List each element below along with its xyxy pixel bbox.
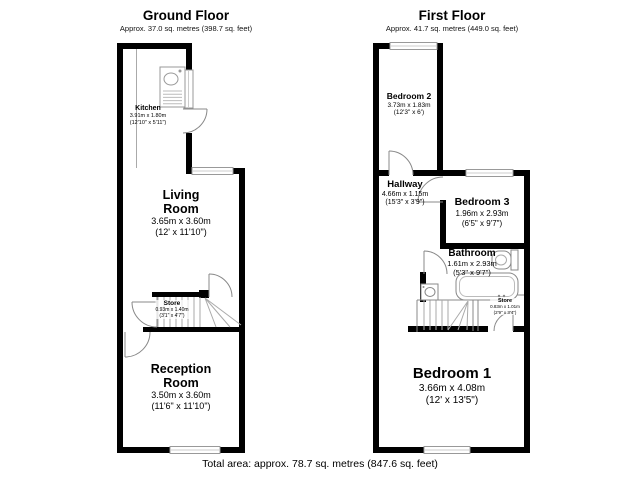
first-floor-header: First Floor Approx. 41.7 sq. metres (449… (386, 8, 518, 33)
store-ground-imperial: (3'1" x 4'7") (155, 313, 188, 319)
bedroom-1-imperial: (12' x 13'5") (413, 395, 491, 407)
bathroom-door-arc (424, 251, 447, 274)
hallway-metric: 4.66m x 1.15m (382, 191, 428, 200)
bedroom-3-imperial: (6'5" x 9'7") (455, 219, 510, 229)
store-first-imperial: (2'9" x 3'4") (490, 310, 520, 315)
kitchen-sink-icon (160, 67, 185, 107)
bedroom-2-name: Bedroom 2 (387, 92, 431, 102)
bathroom-name: Bathroom (447, 248, 497, 259)
room-label-bedroom-1: Bedroom 1 3.66m x 4.08m (12' x 13'5") (413, 366, 491, 407)
living-room-metric: 3.65m x 3.60m (146, 216, 216, 227)
living-room-imperial: (12' x 11'10") (146, 227, 216, 238)
stairs-door-arc (209, 274, 232, 297)
living-room-name: Living Room (146, 188, 216, 216)
kitchen-name: Kitchen (130, 105, 166, 113)
bedroom-3-name: Bedroom 3 (455, 197, 510, 209)
bedroom-1-metric: 3.66m x 4.08m (413, 383, 491, 395)
bedroom-2-imperial: (12'3" x 6') (387, 109, 431, 117)
bathroom-metric: 1.61m x 2.93m (447, 259, 497, 268)
ground-floor-subtitle: Approx. 37.0 sq. metres (398.7 sq. feet) (120, 24, 252, 34)
kitchen-metric: 3.91m x 1.80m (130, 113, 166, 120)
bathroom-imperial: (5'3" x 9'7") (447, 268, 497, 277)
room-label-store-ground: Store 0.93m x 1.40m (3'1" x 4'7") (155, 300, 188, 319)
room-label-store-first: Store 0.83m x 1.01m (2'9" x 3'4") (490, 298, 520, 315)
store-first-metric: 0.83m x 1.01m (490, 304, 520, 309)
total-area-text: Total area: approx. 78.7 sq. metres (847… (0, 458, 640, 470)
bedroom2-door-arc (389, 151, 413, 175)
room-label-bedroom-3: Bedroom 3 1.96m x 2.93m (6'5" x 9'7") (455, 197, 510, 228)
floor-plan-page: Ground Floor Approx. 37.0 sq. metres (39… (0, 0, 640, 480)
first-floor-subtitle: Approx. 41.7 sq. metres (449.0 sq. feet) (386, 24, 518, 34)
bedroom-2-metric: 3.73m x 1.83m (387, 102, 431, 110)
bedroom-1-name: Bedroom 1 (413, 366, 491, 383)
reception-room-imperial: (11'6" x 11'10") (145, 401, 217, 412)
kitchen-imperial: (12'10" x 5'11") (130, 120, 166, 127)
store-ground-name: Store (155, 300, 188, 307)
room-label-bathroom: Bathroom 1.61m x 2.93m (5'3" x 9'7") (447, 248, 497, 277)
store-door-arc (132, 302, 157, 327)
ground-floor-header: Ground Floor Approx. 37.0 sq. metres (39… (120, 8, 252, 33)
room-label-living-room: Living Room 3.65m x 3.60m (12' x 11'10") (146, 188, 216, 238)
first-floor-title: First Floor (386, 8, 518, 24)
basin-icon (421, 284, 438, 300)
room-label-hallway: Hallway 4.66m x 1.15m (15'3" x 3'9") (382, 180, 428, 208)
room-label-kitchen: Kitchen 3.91m x 1.80m (12'10" x 5'11") (130, 105, 166, 126)
reception-door-arc (125, 332, 150, 357)
hallway-name: Hallway (382, 180, 428, 191)
room-label-bedroom-2: Bedroom 2 3.73m x 1.83m (12'3" x 6') (387, 92, 431, 117)
kitchen-door-arc (183, 109, 207, 133)
room-label-reception-room: Reception Room 3.50m x 3.60m (11'6" x 11… (145, 362, 217, 412)
reception-room-metric: 3.50m x 3.60m (145, 390, 217, 401)
bedroom-3-metric: 1.96m x 2.93m (455, 209, 510, 219)
ground-floor-title: Ground Floor (120, 8, 252, 24)
hallway-imperial: (15'3" x 3'9") (382, 199, 428, 208)
floor-plan-drawing (0, 0, 640, 480)
reception-room-name: Reception Room (145, 362, 217, 390)
